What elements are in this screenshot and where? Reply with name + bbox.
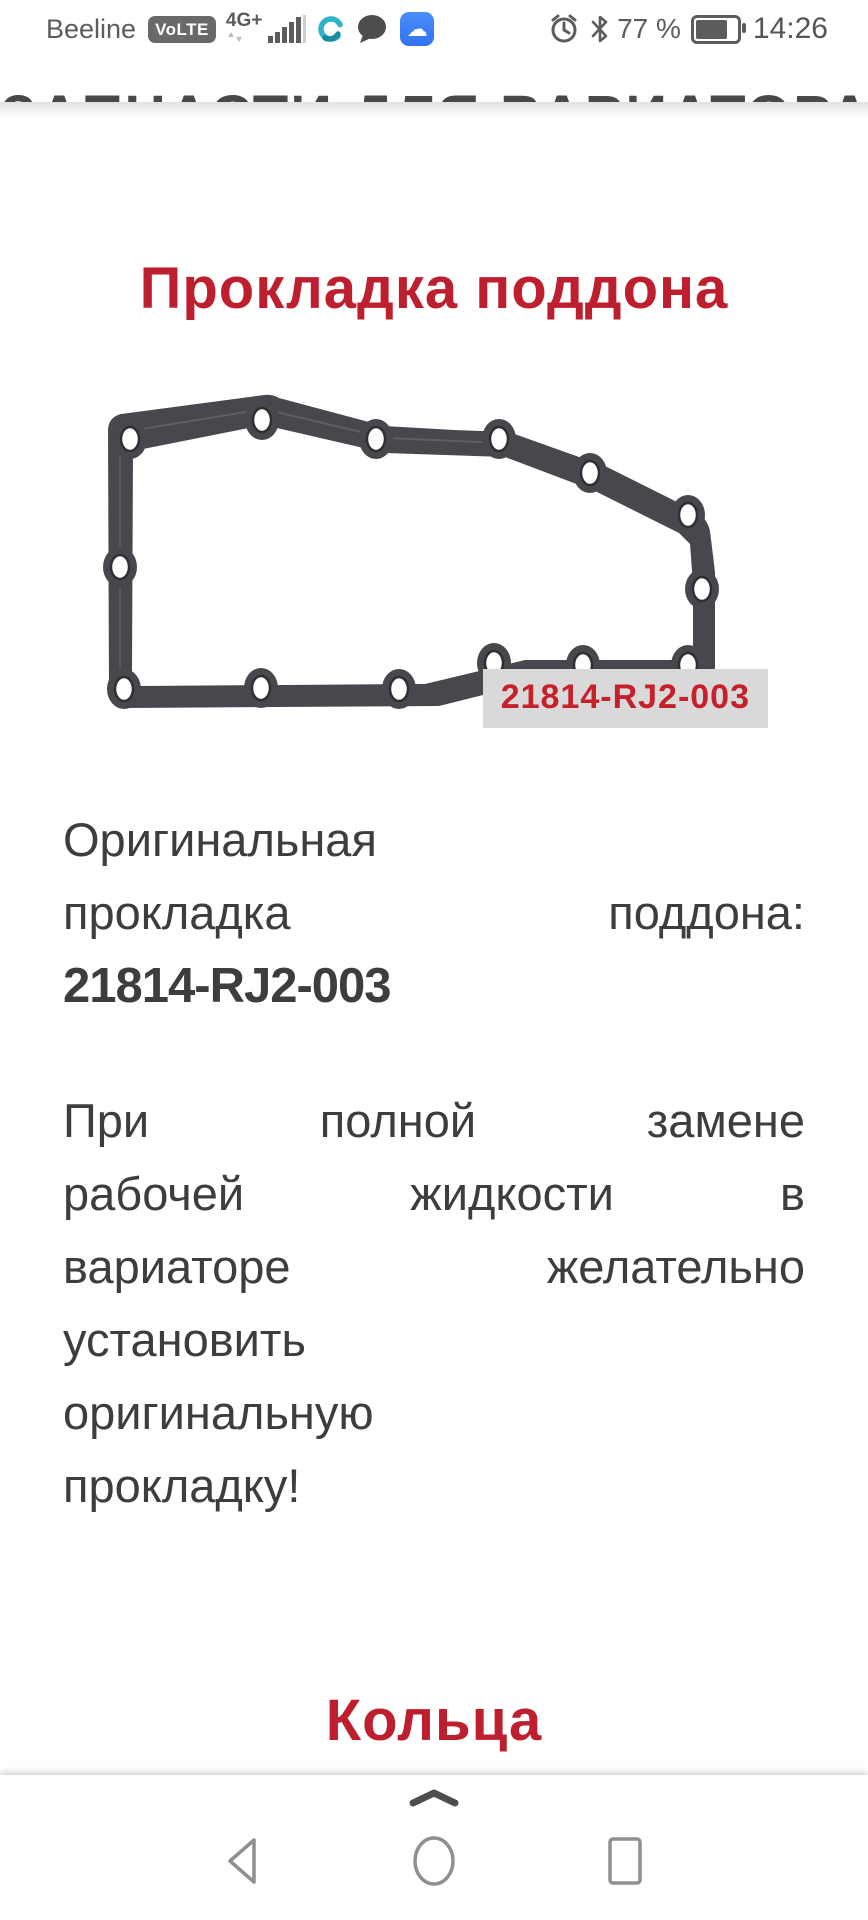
chat-bubble-icon <box>356 14 388 44</box>
back-button[interactable] <box>223 1835 263 1892</box>
text-line: 21814-RJ2-003 <box>63 958 805 1031</box>
word: Оригинальная <box>63 812 377 867</box>
word: полной <box>320 1093 476 1148</box>
text-line: вариаторежелательно <box>63 1239 805 1312</box>
word: прокладку! <box>63 1458 300 1513</box>
word: жидкости <box>410 1166 614 1221</box>
text-line: Оригинальная <box>63 812 805 885</box>
signal-bars-icon <box>268 14 306 44</box>
text-line: оригинальную <box>63 1385 805 1458</box>
recents-button[interactable] <box>605 1835 645 1892</box>
paragraph-original-gasket: Оригинальнаяпрокладкаподдона:21814-RJ2-0… <box>63 812 805 1031</box>
text-line: рабочейжидкостив <box>63 1166 805 1239</box>
nav-icons-row <box>223 1834 645 1893</box>
paragraph-recommendation: Приполнойзаменерабочейжидкостиввариаторе… <box>63 1093 805 1531</box>
word: замене <box>647 1093 805 1148</box>
word: установить <box>63 1312 306 1367</box>
page-header-cutoff: ЗАПЧАСТИ ДЛЯ ВАРИАТОРА <box>0 72 868 102</box>
battery-percent: 77 % <box>617 13 681 45</box>
page-title: Прокладка поддона <box>0 258 868 320</box>
network-type: 4G+ <box>226 11 262 47</box>
text-line: Приполнойзамене <box>63 1093 805 1166</box>
chevron-up-handle[interactable] <box>0 1775 868 1808</box>
recents-square-icon <box>605 1835 645 1892</box>
word: рабочей <box>63 1166 244 1221</box>
home-button[interactable] <box>411 1834 457 1893</box>
word: прокладка <box>63 885 291 940</box>
cloud-app-icon: ☁ <box>400 12 434 46</box>
next-section-title-line1: Кольца <box>326 1688 543 1753</box>
status-bar: Beeline VoLTE 4G+ <box>0 0 868 56</box>
battery-icon <box>691 15 741 44</box>
bluetooth-icon <box>589 14 611 44</box>
word: вариаторе <box>63 1239 291 1294</box>
gasket-figure: 21814-RJ2-003 <box>94 372 774 742</box>
volte-badge: VoLTE <box>148 16 216 43</box>
word: желательно <box>547 1239 805 1294</box>
header-shadow <box>0 102 868 118</box>
status-bar-right: 77 % 14:26 <box>539 12 828 46</box>
back-triangle-icon <box>223 1835 263 1892</box>
status-bar-left: Beeline VoLTE 4G+ <box>46 11 434 47</box>
carrier-label: Beeline <box>46 14 136 45</box>
part-number-label: 21814-RJ2-003 <box>483 669 768 728</box>
clock-label: 14:26 <box>753 12 828 46</box>
navigation-bar <box>0 1775 868 1920</box>
word: 21814-RJ2-003 <box>63 958 391 1014</box>
word: оригинальную <box>63 1385 374 1440</box>
app-ring-icon <box>316 14 346 44</box>
home-circle-icon <box>411 1834 457 1893</box>
updown-arrows-icon <box>227 31 243 47</box>
word: в <box>780 1166 805 1221</box>
text-line: прокладку! <box>63 1458 805 1531</box>
word: При <box>63 1093 149 1148</box>
alarm-clock-icon <box>549 14 579 44</box>
word: поддона: <box>608 885 805 940</box>
text-line: прокладкаподдона: <box>63 885 805 958</box>
text-line: установить <box>63 1312 805 1385</box>
